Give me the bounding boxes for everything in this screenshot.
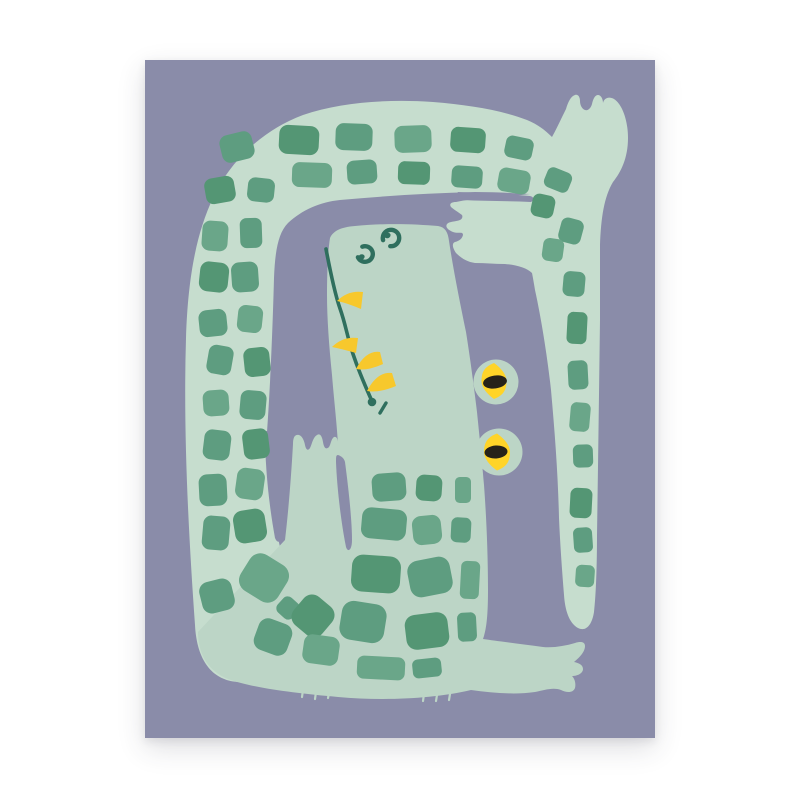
scale-square [569, 402, 591, 433]
crocodile-eyes [482, 363, 511, 471]
scale-square [412, 657, 443, 679]
scale-square [335, 123, 373, 151]
fringe-hair [315, 692, 316, 699]
scale-square [541, 237, 565, 263]
scale-square [198, 473, 228, 506]
fringe-hair [423, 694, 424, 701]
art-print-poster [145, 60, 655, 738]
scale-square [338, 599, 389, 645]
scale-square [404, 611, 451, 651]
scale-square [232, 507, 269, 545]
scale-square [278, 124, 319, 155]
scale-square [411, 514, 443, 546]
scale-square [450, 126, 487, 153]
scale-square [450, 517, 471, 543]
crocodile-illustration [145, 60, 655, 738]
scale-square [566, 311, 588, 344]
fringe-hair [449, 694, 450, 700]
scale-square [567, 360, 588, 390]
scale-square [198, 308, 229, 338]
scale-square [455, 477, 471, 503]
scale-square [573, 444, 594, 468]
scale-square [202, 389, 230, 417]
scale-square [371, 472, 407, 502]
scale-square [398, 161, 431, 185]
fringe-hair [328, 693, 329, 698]
scale-square [246, 177, 275, 204]
fringe-hair [436, 695, 437, 701]
scale-square [346, 159, 378, 185]
page-background [0, 0, 800, 800]
scale-square [239, 218, 262, 249]
scale-square [457, 612, 477, 642]
scale-square [569, 487, 593, 518]
scale-square [236, 304, 264, 333]
scale-square [201, 220, 229, 252]
scale-square [241, 428, 270, 461]
scale-square [573, 527, 594, 553]
fringe-hair [302, 690, 303, 697]
scale-square [451, 165, 483, 189]
scale-square [356, 655, 405, 680]
scale-square [415, 474, 443, 502]
scale-square [394, 125, 432, 153]
scale-square [243, 346, 272, 378]
scale-square [201, 515, 231, 551]
scale-square [301, 633, 341, 667]
scale-square [198, 261, 230, 294]
scale-square [230, 261, 259, 293]
scale-square [460, 561, 481, 600]
scale-square [292, 162, 333, 188]
scale-square [350, 554, 401, 594]
scale-square [562, 271, 586, 298]
scale-square [234, 467, 266, 502]
snout-dot [368, 398, 377, 407]
scale-square [239, 389, 267, 420]
scale-square [202, 428, 232, 461]
scale-square [360, 507, 408, 542]
scale-square [575, 564, 595, 587]
